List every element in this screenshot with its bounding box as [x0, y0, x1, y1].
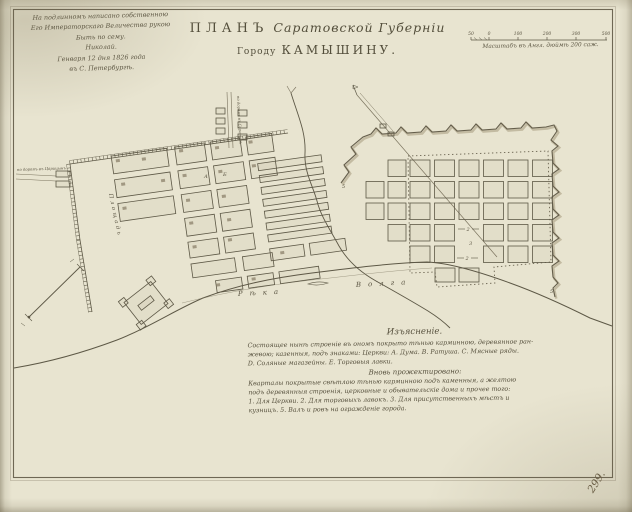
town-block: [459, 268, 479, 282]
town-block: [217, 185, 249, 207]
ravine-head-fork: [287, 86, 296, 93]
rampart-number-5: 5: [550, 289, 553, 295]
town-block: [533, 246, 553, 263]
building-mark: [189, 221, 193, 225]
title-city-name: КАМЫШИНУ.: [281, 43, 398, 57]
fortress: [118, 276, 173, 330]
rampart-tick: [83, 281, 86, 282]
town-block: [508, 225, 528, 242]
building-mark: [248, 140, 252, 144]
rampart-tick: [85, 292, 88, 293]
town-block: [459, 182, 479, 199]
town-block: [210, 138, 242, 160]
building-mark: [251, 277, 255, 281]
rampart-tick: [79, 255, 82, 256]
town-block: [388, 182, 406, 199]
river-label-word1: Рѣка: [237, 288, 286, 299]
town-block: [410, 246, 430, 263]
building-mark: [215, 146, 219, 150]
town-block: [533, 182, 553, 199]
town-block: [533, 225, 553, 242]
west-road: [16, 171, 70, 187]
scale-bar: 50 0 100 200 300 500: [468, 31, 610, 40]
building-mark: [227, 218, 231, 222]
town-block: [410, 203, 430, 220]
town-block: [279, 266, 320, 283]
town-block: [388, 160, 406, 177]
town-block: [410, 160, 430, 177]
rampart-tick: [88, 311, 91, 312]
building-mark: [186, 198, 190, 202]
town-block: [185, 214, 217, 236]
rampart-tick: [85, 289, 88, 290]
town-block: [410, 182, 430, 199]
map-title: ПЛАНЪ Саратовской Губерніи Городу КАМЫШИ…: [175, 17, 460, 58]
rampart-number-5: 5: [342, 184, 345, 190]
river-label-word2: Волга: [355, 278, 413, 289]
town-block: [366, 182, 384, 199]
town-block: [459, 160, 479, 177]
building-mark: [122, 206, 126, 210]
town-block: [224, 233, 256, 253]
map-canvas: 50 0 100 200 300 500 по дорогѣ въ Царицы…: [0, 0, 632, 512]
sandbar-island: [308, 282, 328, 285]
town-block: [459, 203, 479, 220]
building-mark: [161, 179, 165, 183]
scale-tick-label: 500: [602, 31, 611, 37]
building-mark: [121, 182, 125, 186]
building-mark: [179, 149, 183, 153]
explanation-block: Изъясненіе. Состоящее нынѣ строеніе въ о…: [247, 325, 582, 416]
north-road-label: по дорогѣ въ Саратовъ: [236, 96, 244, 145]
town-block: [484, 160, 504, 177]
town-block: [191, 258, 237, 278]
rampart-tick: [77, 244, 80, 245]
bearing-line: [21, 259, 84, 326]
town-block: [188, 238, 220, 258]
town-block: [247, 273, 274, 289]
building-mark: [218, 170, 222, 174]
town-block: [270, 244, 305, 261]
rampart-line: [77, 241, 89, 313]
rampart-tick: [87, 304, 90, 305]
rampart-line: [80, 240, 92, 312]
town-block: [309, 238, 346, 255]
rampart-tick: [78, 251, 81, 252]
town-block: [435, 182, 455, 199]
rampart-tick: [87, 300, 90, 301]
town-block: [484, 182, 504, 199]
rampart-tick: [78, 247, 81, 248]
town-block: [484, 225, 504, 242]
town-block: [435, 160, 455, 177]
title-governorate: Саратовской Губерніи: [273, 20, 445, 35]
town-block: [181, 190, 213, 212]
building-mark: [142, 157, 146, 161]
building-mark: [182, 174, 186, 178]
rampart-tick: [86, 296, 89, 297]
town-block: [533, 160, 553, 177]
town-block: [410, 225, 430, 242]
town-block: [508, 160, 528, 177]
scale-tick-label: 50: [468, 31, 474, 37]
town-block: [508, 203, 528, 220]
building-mark: [116, 159, 120, 163]
block-letter-b: Б: [222, 172, 227, 178]
town-block: [388, 203, 406, 220]
town-block: [175, 143, 207, 165]
scale-tick-label: 300: [572, 31, 581, 37]
rampart-tick: [77, 240, 80, 241]
town-block: [220, 209, 252, 231]
scale-tick-label: 0: [488, 31, 491, 37]
imperial-inscription: На подлинномъ написано собственною Его И…: [15, 9, 187, 76]
quarter-number: 2: [466, 227, 470, 233]
town-block: [533, 203, 553, 220]
rampart-tick: [84, 285, 87, 286]
rampart-tick: [80, 259, 83, 260]
town-block: [388, 225, 406, 242]
old-town-grid: [111, 125, 350, 304]
scale-tick-label: 100: [514, 31, 523, 37]
building-mark: [222, 194, 226, 198]
town-block: [484, 246, 504, 263]
town-block: [484, 203, 504, 220]
quarter-number: 2: [465, 256, 469, 262]
title-word-plan: ПЛАНЪ: [190, 21, 269, 36]
town-block: [366, 203, 384, 220]
town-block: [508, 246, 528, 263]
town-block: [214, 162, 246, 184]
title-city-prefix: Городу: [237, 47, 276, 57]
town-block: [435, 246, 455, 263]
town-block: [508, 182, 528, 199]
rampart-tick: [88, 307, 91, 308]
building-mark: [228, 238, 232, 242]
building-mark: [280, 251, 284, 255]
quarter-number: 3: [469, 241, 472, 247]
scanned-map-page: 50 0 100 200 300 500 по дорогѣ въ Царицы…: [0, 0, 632, 512]
rampart-tick: [81, 266, 84, 267]
scale-tick-label: 200: [542, 31, 552, 37]
rampart-tick: [80, 262, 83, 263]
rampart-tick: [82, 274, 85, 275]
town-block: [435, 225, 455, 242]
town-block: [242, 253, 274, 271]
building-mark: [252, 164, 256, 168]
block-letter-a: А: [203, 174, 208, 180]
town-block: [435, 203, 455, 220]
building-mark: [216, 283, 220, 287]
town-block: [435, 268, 455, 282]
rampart-tick: [83, 277, 86, 278]
building-mark: [192, 245, 196, 249]
